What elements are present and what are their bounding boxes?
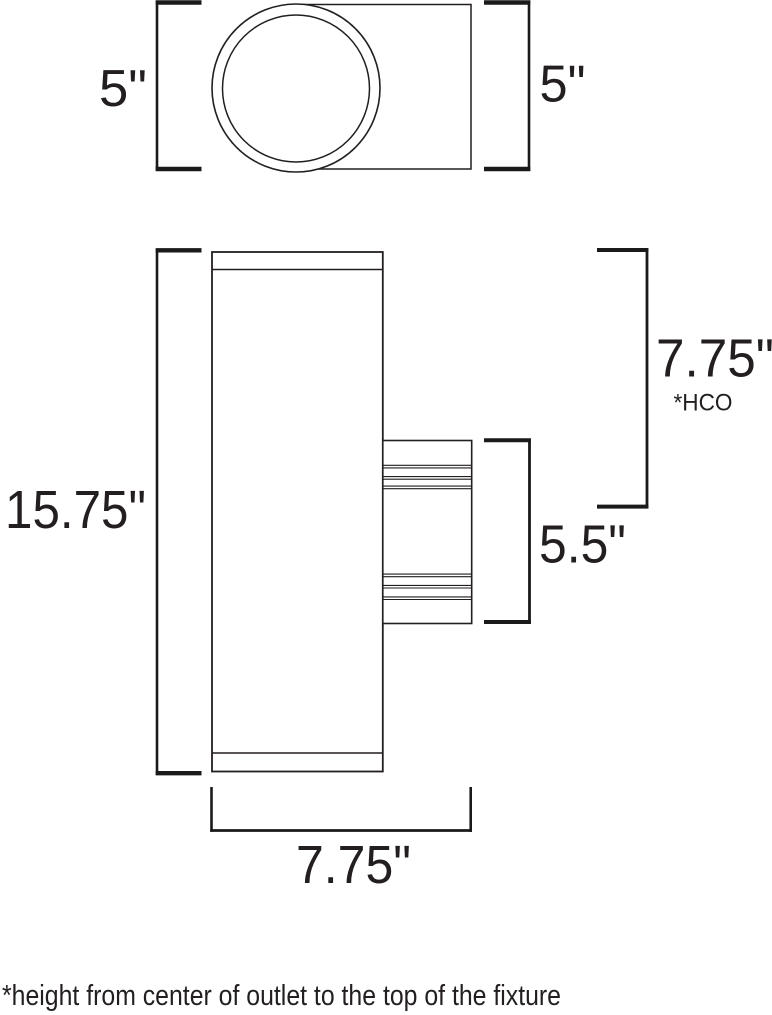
svg-text:7.75": 7.75" bbox=[656, 329, 772, 389]
svg-text:5.5": 5.5" bbox=[539, 515, 626, 575]
svg-text:*HCO: *HCO bbox=[674, 390, 733, 417]
svg-text:*height from center of outlet: *height from center of outlet to the top… bbox=[2, 980, 561, 1012]
svg-text:5": 5" bbox=[99, 60, 147, 118]
svg-text:7.75": 7.75" bbox=[296, 835, 411, 895]
svg-text:15.75": 15.75" bbox=[5, 480, 146, 540]
svg-text:5": 5" bbox=[540, 55, 586, 113]
